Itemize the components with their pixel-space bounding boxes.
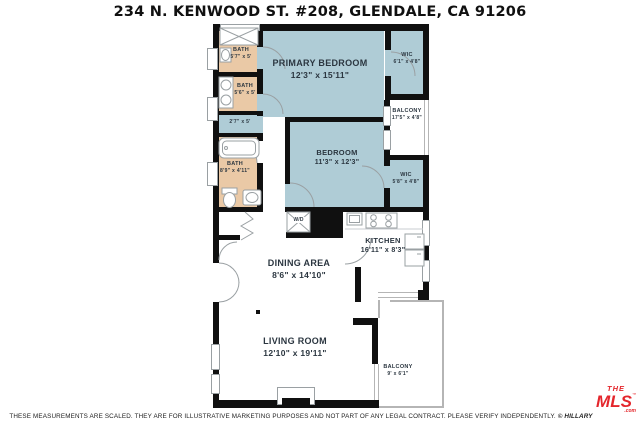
label-bath-mid: BATH 5'6" x 5' xyxy=(234,83,255,97)
label-balcony-right: BALCONY 17'5" x 4'8" xyxy=(392,108,422,122)
toilet-icon xyxy=(224,193,236,208)
stove-burner-icon xyxy=(371,215,377,221)
label-bath-top: BATH 5'7" x 5' xyxy=(230,47,251,61)
label-wic-top: WIC 6'1" x 4'8" xyxy=(393,52,420,66)
door-arc-icon xyxy=(219,282,239,302)
disclaimer: THESE MEASUREMENTS ARE SCALED. THEY ARE … xyxy=(0,413,640,420)
faucet-icon xyxy=(225,147,228,150)
label-kitchen: KITCHEN 16'11" x 8'3" xyxy=(361,236,406,255)
stove-burner-icon xyxy=(386,215,392,221)
stove-icon xyxy=(366,213,397,228)
label-living: LIVING ROOM 12'10" x 19'11" xyxy=(263,336,327,359)
page-title: 234 N. KENWOOD ST. #208, GLENDALE, CA 91… xyxy=(0,4,640,20)
label-bedroom: BEDROOM 11'3" x 12'3" xyxy=(315,148,360,167)
sink-icon xyxy=(222,50,230,61)
stove-burner-icon xyxy=(371,221,377,227)
fridge-icon xyxy=(405,234,424,249)
label-bath-lower: BATH 8'9" x 4'11" xyxy=(220,161,250,175)
label-laundry: W/D xyxy=(292,217,304,223)
door-arc-icon xyxy=(263,94,283,114)
door-arc-icon xyxy=(362,166,384,188)
fridge-icon xyxy=(405,250,424,266)
label-balcony-bottom: BALCONY 9' x 6'1" xyxy=(383,364,412,378)
sink-icon xyxy=(221,80,231,90)
door-arc-icon xyxy=(219,263,239,283)
door-arc-icon xyxy=(219,242,237,260)
label-dining: DINING AREA 8'6" x 14'10" xyxy=(268,258,330,281)
sink-icon xyxy=(246,193,258,203)
floor-plan: PRIMARY BEDROOM 12'3" x 15'11" BEDROOM 1… xyxy=(195,24,447,412)
accordion-door-icon xyxy=(241,212,253,240)
sink-icon xyxy=(221,95,231,105)
label-closet: 2'7" x 5' xyxy=(229,119,250,126)
stove-burner-icon xyxy=(386,221,392,227)
label-primary-bedroom: PRIMARY BEDROOM 12'3" x 15'11" xyxy=(272,58,367,81)
door-arc-icon xyxy=(290,183,314,207)
floorplan-page: 234 N. KENWOOD ST. #208, GLENDALE, CA 91… xyxy=(0,0,640,427)
kitchen-sink-icon xyxy=(350,216,360,223)
mls-logo: THE MLS™ .com xyxy=(594,383,638,421)
label-wic-lower: WIC 5'8" x 4'8" xyxy=(392,172,419,186)
